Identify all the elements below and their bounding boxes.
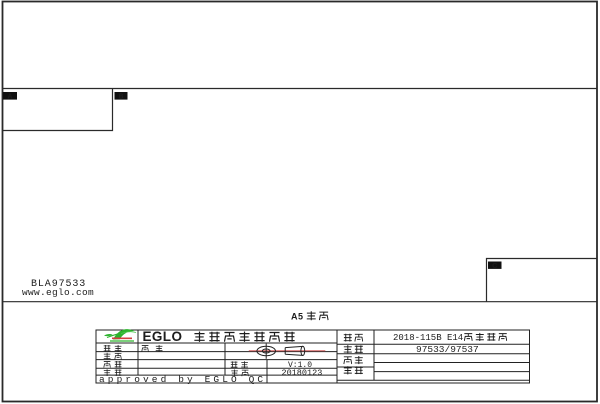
svg-text:2018-115B E14: 2018-115B E14 xyxy=(393,333,463,343)
svg-text:97533/97537: 97533/97537 xyxy=(416,344,479,355)
svg-text:EGLO: EGLO xyxy=(143,329,183,344)
svg-text:A: A xyxy=(7,92,12,101)
svg-text:approved by EGLO QC: approved by EGLO QC xyxy=(99,374,266,385)
svg-text:20180123: 20180123 xyxy=(282,368,323,378)
svg-text:B: B xyxy=(118,92,123,101)
svg-text:www.eglo.com: www.eglo.com xyxy=(22,287,94,298)
svg-text:A5: A5 xyxy=(291,312,304,322)
svg-text:C: C xyxy=(492,261,497,270)
